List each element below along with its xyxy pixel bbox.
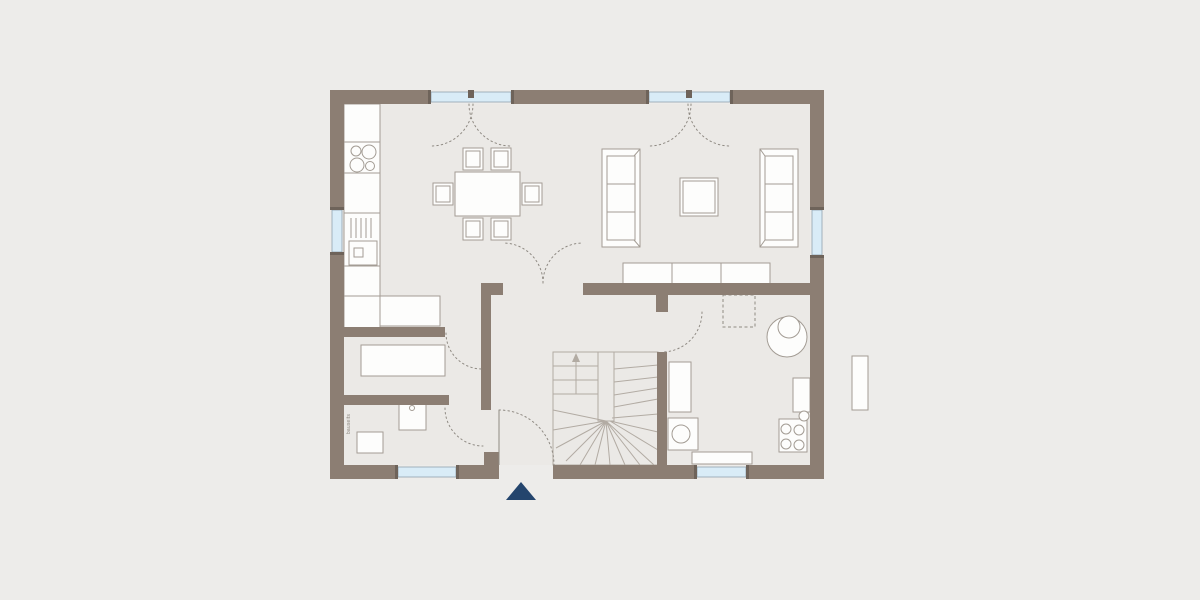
wall-unit — [793, 378, 810, 412]
wardrobe — [361, 345, 445, 376]
exterior-object — [852, 356, 868, 410]
wall-bottom — [456, 465, 499, 479]
wall-utility-north — [344, 395, 449, 405]
wall-left — [330, 252, 344, 479]
window — [330, 207, 344, 255]
floor-plan-canvas: bauseits bauseits — [0, 0, 1200, 600]
chair — [463, 218, 483, 240]
coffee-table — [680, 178, 718, 216]
wall-stub — [656, 295, 668, 312]
washing-machine — [399, 404, 426, 430]
window — [694, 465, 749, 479]
freezer — [357, 432, 383, 453]
wall-bottom — [553, 465, 697, 479]
chair — [433, 183, 453, 205]
kitchen-peninsula — [380, 296, 440, 326]
chair — [491, 148, 511, 170]
dining-table — [455, 172, 520, 216]
chair — [522, 183, 542, 205]
chair — [491, 218, 511, 240]
wall-living-south — [583, 283, 810, 295]
label-bauseits-wall: bauseits — [346, 414, 352, 435]
terrace-door — [428, 90, 514, 104]
wall-right — [810, 90, 824, 210]
wall-kitchen-south — [344, 327, 445, 337]
water-tank — [767, 316, 807, 357]
cabinet — [669, 362, 691, 412]
sofa — [602, 149, 640, 247]
wall-entry-jamb — [484, 452, 499, 465]
wall-stairs-east — [657, 352, 667, 465]
terrace-door — [646, 90, 733, 104]
wall-top — [730, 90, 824, 104]
window — [810, 207, 824, 258]
wall-left — [330, 90, 344, 210]
stair-void — [598, 352, 614, 421]
wall-top — [330, 90, 431, 104]
sofa — [760, 149, 798, 247]
window — [395, 465, 459, 479]
washing-machine — [668, 418, 698, 450]
chair — [463, 148, 483, 170]
wall-right — [810, 255, 824, 479]
hallway — [361, 345, 445, 376]
wall-hall-west — [481, 283, 491, 410]
window-sill — [692, 452, 752, 464]
sideboard — [623, 263, 770, 284]
wall-top — [511, 90, 649, 104]
